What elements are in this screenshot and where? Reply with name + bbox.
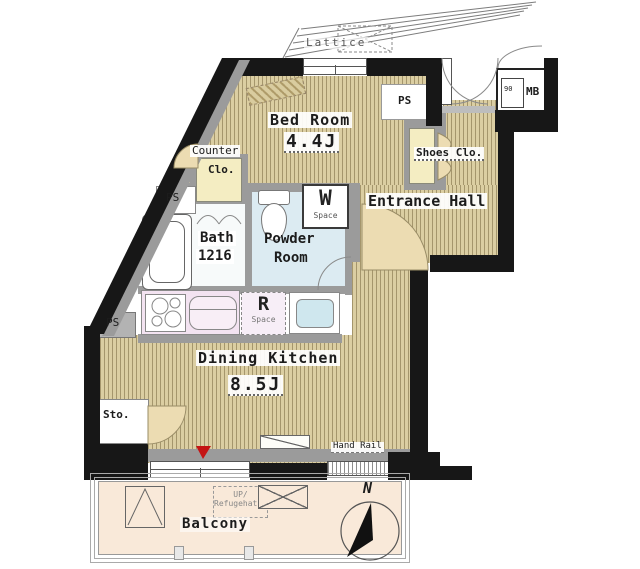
counter-closet-label2: Clo. [206, 164, 237, 176]
bathtub-inner [149, 221, 185, 283]
wall-top-right [367, 58, 428, 76]
corridor-floor [352, 262, 410, 338]
powder-room-label2: Room [272, 251, 310, 266]
wall-top-left [222, 58, 303, 76]
floor-plan: W Space R Space UP/ Refugehatch [0, 0, 640, 569]
balcony-divider-right [244, 546, 254, 560]
compass-north-label: N [361, 480, 374, 496]
dk-name: Dining Kitchen [196, 350, 340, 366]
mb-label: MB [524, 86, 541, 98]
ps-top-label: PS [396, 95, 413, 107]
wall-bath-powder [245, 192, 252, 290]
dk-size: 8.5J [228, 375, 283, 396]
wall-west [84, 326, 100, 448]
entrance-door-arc [452, 58, 498, 104]
entrance-floor-upper [443, 100, 500, 188]
balcony-unit-box [125, 486, 165, 528]
bath-size: 1216 [196, 249, 234, 264]
wall-hall-south [430, 255, 514, 272]
wall-east-upper [498, 130, 514, 262]
washer-space-letter: W [304, 186, 347, 210]
ps-mid-label: PS [164, 192, 181, 204]
wall-entrance-column [426, 58, 442, 126]
storage-label: Sto. [101, 409, 132, 421]
counter-closet-label1: Counter [190, 145, 240, 157]
fridge-space-box: R Space [241, 292, 286, 335]
fridge-space-word: Space [242, 315, 285, 324]
powder-room-label1: Powder [262, 232, 317, 247]
dk-step [260, 435, 310, 449]
wall-mb-bottom [495, 110, 558, 132]
entrance-door-leaf [441, 58, 452, 105]
mb-inner-label: 90 [502, 86, 514, 94]
entrance-threshold [442, 106, 495, 113]
hand-rail-label: Hand Rail [331, 442, 384, 453]
balcony-label: Balcony [180, 517, 250, 532]
shoes-closet-label: Shoes Clo. [414, 147, 484, 161]
entrance-hall-label: Entrance Hall [366, 193, 487, 209]
kitchen-sink [189, 296, 237, 330]
lattice-lines [283, 2, 536, 58]
wall-counter-south [138, 334, 342, 343]
meter-box-door-arc [498, 46, 542, 68]
ps-left-label: PS [104, 317, 121, 329]
washer-space-word: Space [304, 211, 347, 220]
bedroom-name: Bed Room [268, 112, 352, 128]
fridge-space-letter: R [242, 293, 285, 315]
bath-name: Bath [198, 231, 236, 246]
storage-box [97, 399, 149, 444]
bedroom-size: 4.4J [284, 132, 339, 153]
washbasin-bowl [296, 299, 334, 328]
washer-space-box: W Space [302, 184, 349, 229]
balcony-x-box [258, 485, 308, 509]
stove [145, 294, 186, 332]
bedroom-window [303, 58, 367, 75]
balcony-divider-left [174, 546, 184, 560]
lattice-label: Lattice [304, 37, 368, 49]
wall-east-lower [410, 262, 428, 458]
